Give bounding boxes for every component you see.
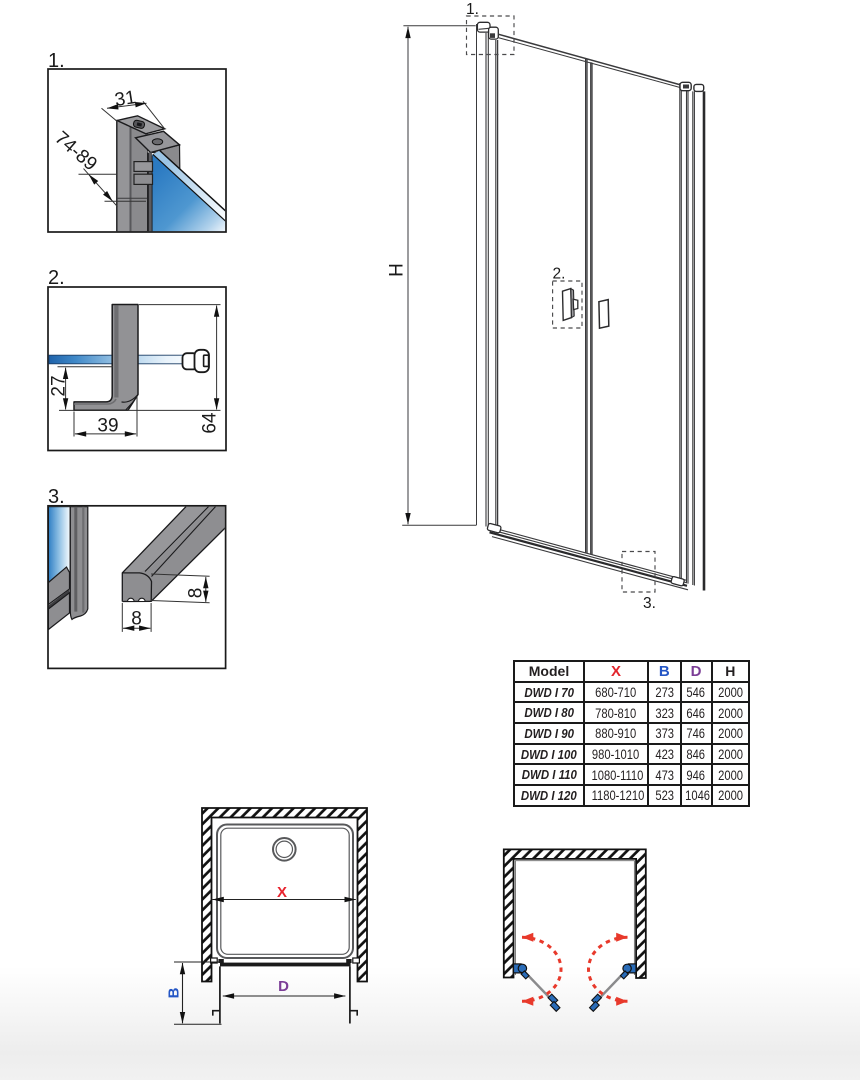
svg-text:27: 27 bbox=[49, 375, 70, 396]
svg-text:8: 8 bbox=[186, 588, 207, 599]
svg-text:D: D bbox=[278, 978, 289, 995]
svg-text:8: 8 bbox=[131, 609, 142, 630]
svg-text:H: H bbox=[387, 263, 408, 277]
svg-text:2.: 2. bbox=[553, 266, 566, 283]
svg-text:3.: 3. bbox=[643, 595, 656, 612]
svg-text:1.: 1. bbox=[466, 1, 479, 18]
svg-text:31: 31 bbox=[113, 87, 137, 111]
svg-text:74-89: 74-89 bbox=[50, 128, 100, 176]
svg-text:B: B bbox=[166, 987, 183, 998]
svg-text:3.: 3. bbox=[48, 486, 65, 508]
svg-text:39: 39 bbox=[97, 416, 118, 437]
svg-text:2.: 2. bbox=[48, 267, 65, 289]
svg-text:X: X bbox=[277, 884, 287, 901]
svg-text:64: 64 bbox=[200, 412, 221, 434]
